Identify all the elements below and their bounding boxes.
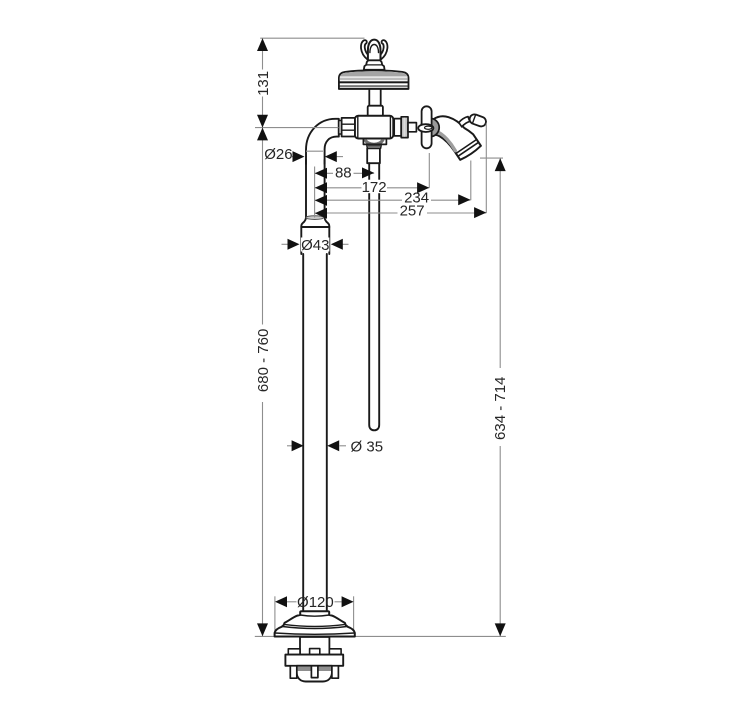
svg-text:680 - 760: 680 - 760 (255, 329, 272, 392)
svg-text:Ø26: Ø26 (264, 146, 292, 163)
svg-text:Ø 35: Ø 35 (351, 439, 384, 456)
svg-text:131: 131 (255, 71, 272, 96)
svg-text:88: 88 (335, 164, 352, 181)
svg-text:172: 172 (362, 179, 387, 196)
svg-text:Ø43: Ø43 (301, 237, 329, 254)
svg-text:257: 257 (400, 203, 425, 220)
svg-text:634 - 714: 634 - 714 (492, 377, 509, 440)
svg-text:Ø120: Ø120 (297, 594, 334, 611)
